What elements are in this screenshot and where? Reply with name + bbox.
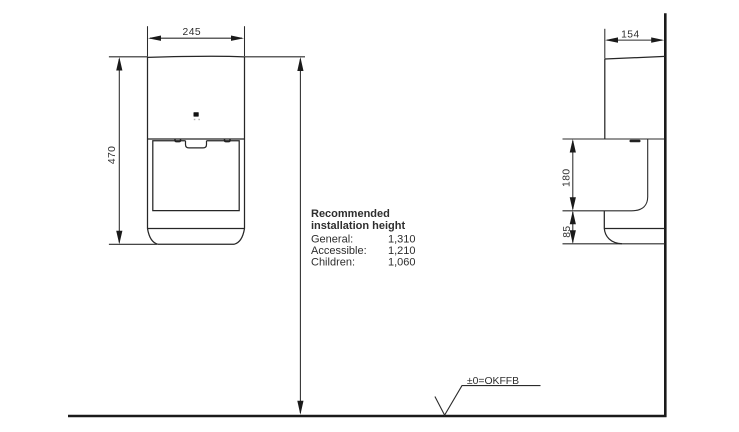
svg-text:85: 85 — [562, 225, 573, 237]
svg-text:1,060: 1,060 — [388, 257, 416, 269]
svg-text:General:: General: — [311, 234, 353, 246]
svg-text:Children:: Children: — [311, 257, 355, 269]
svg-text:Recommended: Recommended — [311, 208, 390, 220]
svg-text:245: 245 — [183, 27, 202, 38]
svg-text:±0=OKFFB: ±0=OKFFB — [467, 376, 519, 387]
svg-text:180: 180 — [562, 168, 573, 187]
svg-text:installation height: installation height — [311, 220, 405, 232]
svg-text:470: 470 — [107, 146, 118, 165]
svg-text:Accessible:: Accessible: — [311, 245, 367, 257]
svg-text:154: 154 — [621, 29, 640, 40]
svg-text:1,210: 1,210 — [388, 245, 416, 257]
svg-text:1,310: 1,310 — [388, 234, 416, 246]
